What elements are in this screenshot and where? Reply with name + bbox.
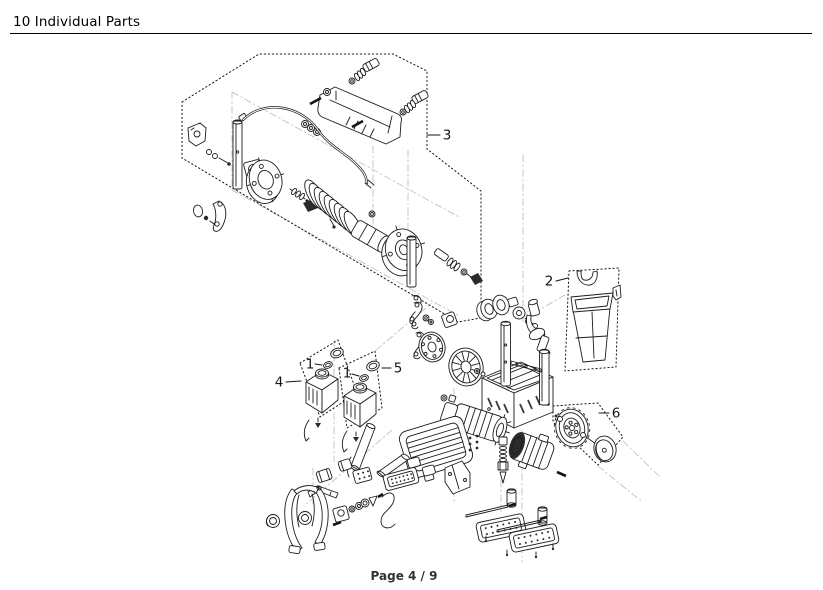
- plug-valve-column: [498, 437, 508, 483]
- outlet-elbow-assembly: [526, 298, 550, 355]
- callout-label-6: 6: [612, 406, 621, 422]
- s-hose: [381, 493, 395, 528]
- callout-label-2: 2: [545, 274, 554, 290]
- callout-label-1-right: 1: [343, 366, 352, 382]
- manual-page: 10 Individual Parts: [0, 0, 823, 590]
- page-footer: Page 4 / 9: [0, 569, 808, 583]
- handle-bolt-1: [362, 58, 380, 73]
- callout-leader-1-right: [352, 374, 359, 376]
- frame-post-1: [501, 321, 511, 386]
- callout-label-1-left: 1: [306, 357, 315, 373]
- exploded-parts-diagram: 3 2 4 5 6 1 1: [0, 0, 823, 590]
- bolt-spring-set-lower: [434, 248, 483, 285]
- frame-stand: [266, 486, 328, 554]
- motor-flange-left: [240, 152, 291, 208]
- pump-motor: [504, 425, 557, 475]
- fastener-dots: [469, 435, 479, 452]
- carry-handle-assembly: [302, 58, 429, 144]
- callout-label-3: 3: [443, 128, 452, 144]
- frame-post-2: [540, 349, 550, 405]
- callout-label-5: 5: [394, 361, 403, 377]
- seal-ring-and-crank: [192, 201, 226, 231]
- detergent-bucket: [571, 271, 621, 362]
- motor-flange-right: [374, 219, 432, 280]
- washer-cone-row: [332, 494, 383, 523]
- callout-leader-2: [556, 278, 568, 281]
- callout-label-4: 4: [275, 375, 284, 391]
- callout-leader-4: [286, 381, 301, 382]
- callout-leader-1-left: [315, 364, 322, 365]
